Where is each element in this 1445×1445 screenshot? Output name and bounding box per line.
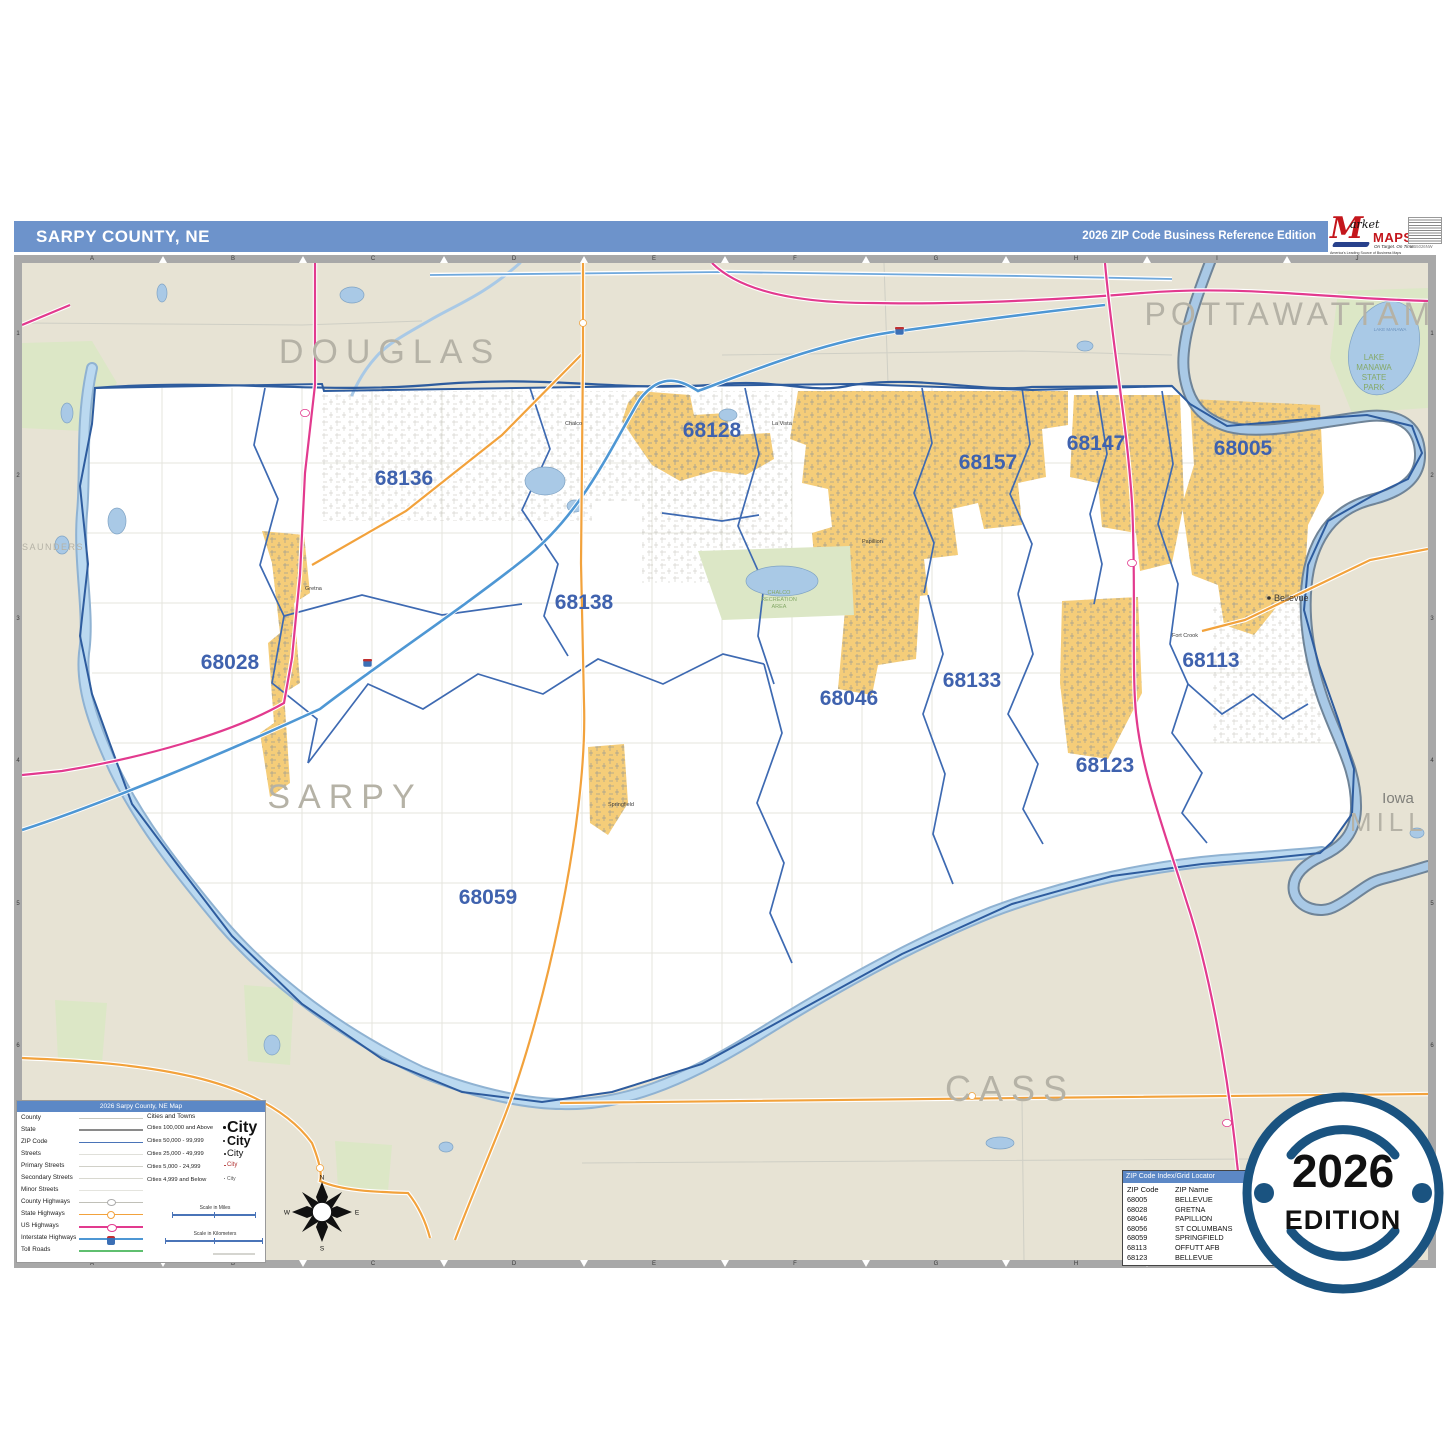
grid-col-e: E — [584, 255, 724, 263]
legend-city-class-2-label: Cities 50,000 - 99,999 — [147, 1138, 227, 1144]
state-label-iowa: Iowa — [1382, 790, 1414, 807]
grid-notch — [862, 256, 870, 263]
legend-line-county-highways — [79, 1202, 143, 1203]
zip-col-code-header: ZIP Code — [1127, 1185, 1159, 1194]
scale-tick — [172, 1212, 173, 1218]
interstate-shield-icon — [107, 1236, 115, 1245]
county-label-sarpy: SARPY — [267, 778, 422, 816]
city-label-gretna: Gretna — [305, 586, 323, 592]
legend-city-class-2-sample: City — [227, 1134, 251, 1148]
city-dot-icon — [224, 1165, 226, 1167]
grid-row-1: 1 — [14, 329, 22, 339]
grid-col-f: F — [725, 255, 865, 263]
legend-city-class-5-label: Cities 4,999 and Below — [147, 1177, 227, 1183]
legend-line-minor-streets — [79, 1190, 143, 1191]
us-highway-shield-icon — [107, 1224, 117, 1232]
badge-right-dot — [1412, 1183, 1432, 1203]
zip-label-68136: 68136 — [375, 467, 433, 490]
grid-notch — [721, 256, 729, 263]
zip-row-name: BELLEVUE — [1175, 1253, 1213, 1262]
lake-label-manawa: LAKE MANAWA — [1374, 327, 1407, 332]
city-label-springfield: Springfield — [608, 802, 634, 808]
city-label-fort-crook: Fort Crook — [1172, 633, 1198, 639]
legend-item-streets: Streets — [21, 1150, 41, 1157]
zip-label-68123: 68123 — [1076, 754, 1134, 777]
legend-line-streets — [79, 1154, 143, 1155]
scale-miles-label: Scale in Miles — [167, 1205, 263, 1211]
zip-label-68113: 68113 — [1182, 649, 1239, 672]
grid-notch — [299, 256, 307, 263]
city-label-papillion: Papillion — [862, 539, 883, 545]
grid-col-f-bottom: F — [725, 1260, 865, 1268]
zip-label-68005: 68005 — [1214, 437, 1273, 460]
county-label-mills: MILLS — [1350, 807, 1428, 837]
grid-col-j: J — [1287, 255, 1427, 263]
grid-notch — [299, 1260, 307, 1267]
grid-notch — [440, 1260, 448, 1267]
city-sample-text: City — [227, 1148, 243, 1159]
legend-fine-print — [213, 1253, 255, 1255]
legend-item-county: County — [21, 1114, 41, 1121]
park-label-chalco-2: RECREATION — [761, 597, 797, 603]
legend-item-interstate-highways: Interstate Highways — [21, 1234, 76, 1241]
logo-tagline: On Target. On Time. — [1374, 244, 1415, 249]
zip-row-code: 68123 — [1127, 1253, 1147, 1262]
legend-item-secondary-streets: Secondary Streets — [21, 1174, 73, 1181]
grid-row-3: 3 — [14, 614, 22, 624]
state-highway-shield-icon — [107, 1211, 115, 1219]
scale-miles-bar — [172, 1214, 256, 1216]
county-label-cass: CASS — [945, 1068, 1075, 1109]
scale-tick — [214, 1212, 215, 1218]
city-sample-text: City — [227, 1162, 237, 1168]
zip-row-name: ST COLUMBANS — [1175, 1224, 1232, 1233]
grid-col-d-bottom: D — [444, 1260, 584, 1268]
scale-tick — [255, 1212, 256, 1218]
legend-line-state — [79, 1129, 143, 1131]
legend-item-us-highways: US Highways — [21, 1222, 59, 1229]
scale-tick — [214, 1238, 215, 1244]
zip-row-name: PAPILLION — [1175, 1214, 1212, 1223]
zip-label-68059: 68059 — [459, 886, 517, 909]
legend-item-zipcode: ZIP Code — [21, 1138, 48, 1145]
zip-row-code: 68028 — [1127, 1205, 1147, 1214]
zip-label-68138: 68138 — [555, 591, 614, 614]
legend-title: 2026 Sarpy County, NE Map — [17, 1101, 265, 1112]
legend-item-state: State — [21, 1126, 36, 1133]
legend-line-primary-streets — [79, 1166, 143, 1167]
map-legend: 2026 Sarpy County, NE Map County State Z… — [16, 1100, 266, 1263]
city-sample-text: City — [227, 1176, 236, 1182]
marketmaps-logo: M arket MAPS On Target. On Time. America… — [1328, 215, 1442, 256]
park-label-manawa-4: PARK — [1363, 383, 1385, 392]
legend-city-class-4-label: Cities 5,000 - 24,999 — [147, 1164, 227, 1170]
grid-notch — [1002, 1260, 1010, 1267]
badge-left-dot — [1254, 1183, 1274, 1203]
zip-row-name: GRETNA — [1175, 1205, 1205, 1214]
grid-col-d: D — [444, 255, 584, 263]
park-label-chalco-1: CHALCO — [768, 590, 792, 596]
county-label-saunders: SAUNDERS — [22, 542, 84, 552]
zip-col-name-header: ZIP Name — [1175, 1185, 1209, 1194]
legend-city-class-3-label: Cities 25,000 - 49,999 — [147, 1151, 227, 1157]
grid-row-6-right: 6 — [1428, 1041, 1436, 1051]
zip-row-name: OFFUTT AFB — [1175, 1243, 1219, 1252]
zip-label-68028: 68028 — [201, 651, 260, 674]
zip-row-code: 68046 — [1127, 1214, 1147, 1223]
grid-row-4: 4 — [14, 756, 22, 766]
grid-col-a: A — [22, 255, 162, 263]
grid-notch — [440, 256, 448, 263]
city-label-bellevue: Bellevue — [1274, 593, 1309, 603]
legend-line-county — [79, 1118, 143, 1119]
park-label-manawa-2: MANAWA — [1356, 363, 1392, 372]
grid-row-4-right: 4 — [1428, 756, 1436, 766]
grid-row-2: 2 — [14, 471, 22, 481]
legend-line-state-highways — [79, 1214, 143, 1215]
grid-notch — [159, 256, 167, 263]
compass-s-label: S — [320, 1246, 325, 1253]
zip-row-code: 68056 — [1127, 1224, 1147, 1233]
grid-col-h: H — [1006, 255, 1146, 263]
logo-product-code: W55026NW — [1410, 244, 1433, 249]
zip-row-code: 68005 — [1127, 1195, 1147, 1204]
grid-col-e-bottom: E — [584, 1260, 724, 1268]
scale-km-bar — [165, 1240, 263, 1242]
legend-item-county-highways: County Highways — [21, 1198, 70, 1205]
scale-km-label: Scale in Kilometers — [161, 1231, 269, 1237]
title-bar: SARPY COUNTY, NE 2026 ZIP Code Business … — [14, 221, 1328, 252]
city-dot-icon — [223, 1126, 226, 1129]
compass-e-label: E — [355, 1210, 360, 1217]
zip-label-68157: 68157 — [959, 451, 1017, 474]
grid-col-i: I — [1147, 255, 1287, 263]
legend-line-secondary-streets — [79, 1178, 143, 1179]
badge-year: 2026 — [1292, 1145, 1394, 1197]
grid-notch — [580, 256, 588, 263]
zip-label-68147: 68147 — [1067, 432, 1125, 455]
grid-row-2-right: 2 — [1428, 471, 1436, 481]
zip-row-name: SPRINGFIELD — [1175, 1233, 1224, 1242]
city-dot-icon — [224, 1153, 226, 1155]
grid-col-g: G — [866, 255, 1006, 263]
grid-notch — [1002, 256, 1010, 263]
legend-line-zipcode — [79, 1142, 143, 1143]
grid-row-5-right: 5 — [1428, 899, 1436, 909]
grid-col-g-bottom: G — [866, 1260, 1006, 1268]
grid-col-c: C — [303, 255, 443, 263]
logo-maps-text: MAPS — [1373, 230, 1413, 245]
grid-row-5: 5 — [14, 899, 22, 909]
grid-notch — [1143, 256, 1151, 263]
grid-notch — [580, 1260, 588, 1267]
city-sample-text: City — [227, 1134, 251, 1148]
edition-label: 2026 ZIP Code Business Reference Edition — [1082, 221, 1316, 252]
zip-row-code: 68059 — [1127, 1233, 1147, 1242]
compass-n-label: N — [320, 1175, 325, 1182]
legend-city-class-3-sample: City — [227, 1148, 243, 1159]
legend-city-class-5-sample: City — [227, 1176, 236, 1182]
grid-notch — [721, 1260, 729, 1267]
legend-city-class-1-label: Cities 100,000 and Above — [147, 1125, 227, 1131]
scale-tick — [165, 1238, 166, 1244]
page-title: SARPY COUNTY, NE — [36, 221, 210, 252]
map-sheet: SARPY COUNTY, NE 2026 ZIP Code Business … — [0, 0, 1445, 1445]
park-label-manawa-3: STATE — [1362, 373, 1387, 382]
county-highway-shield-icon — [107, 1199, 116, 1206]
grid-row-1-right: 1 — [1428, 329, 1436, 339]
city-label-chalco: Chalco — [565, 421, 582, 427]
legend-item-minor-streets: Minor Streets — [21, 1186, 58, 1193]
zip-row-name: BELLEVUE — [1175, 1195, 1213, 1204]
zip-label-68128: 68128 — [683, 419, 742, 442]
legend-cities-header: Cities and Towns — [147, 1113, 195, 1120]
grid-row-6: 6 — [14, 1041, 22, 1051]
grid-col-b: B — [163, 255, 303, 263]
badge-word: EDITION — [1285, 1205, 1402, 1235]
legend-city-class-4-sample: City — [227, 1162, 237, 1168]
legend-item-state-highways: State Highways — [21, 1210, 65, 1217]
legend-line-us-highways — [79, 1226, 143, 1228]
bellevue-city-dot — [1267, 596, 1271, 600]
legend-line-toll-roads — [79, 1250, 143, 1252]
zip-label-68133: 68133 — [943, 669, 1001, 692]
grid-col-c-bottom: C — [303, 1260, 443, 1268]
zip-row-code: 68113 — [1127, 1243, 1147, 1252]
scale-tick — [262, 1238, 263, 1244]
city-label-la-vista: La Vista — [772, 421, 793, 427]
compass-w-label: W — [284, 1210, 291, 1217]
legend-line-interstate-highways — [79, 1238, 143, 1240]
park-label-manawa-1: LAKE — [1364, 353, 1384, 362]
grid-notch — [1283, 256, 1291, 263]
park-label-chalco-3: AREA — [772, 604, 787, 610]
compass-rose: N E S W — [282, 1172, 362, 1252]
zip-label-68046: 68046 — [820, 687, 878, 710]
logo-swoosh-icon — [1332, 242, 1370, 247]
grid-row-3-right: 3 — [1428, 614, 1436, 624]
legend-item-toll-roads: Toll Roads — [21, 1246, 50, 1253]
grid-notch — [862, 1260, 870, 1267]
edition-badge: 2026 EDITION — [1238, 1088, 1445, 1298]
county-label-douglas: DOUGLAS — [279, 333, 501, 371]
logo-contact-block — [1408, 217, 1442, 244]
legend-item-primary-streets: Primary Streets — [21, 1162, 64, 1169]
